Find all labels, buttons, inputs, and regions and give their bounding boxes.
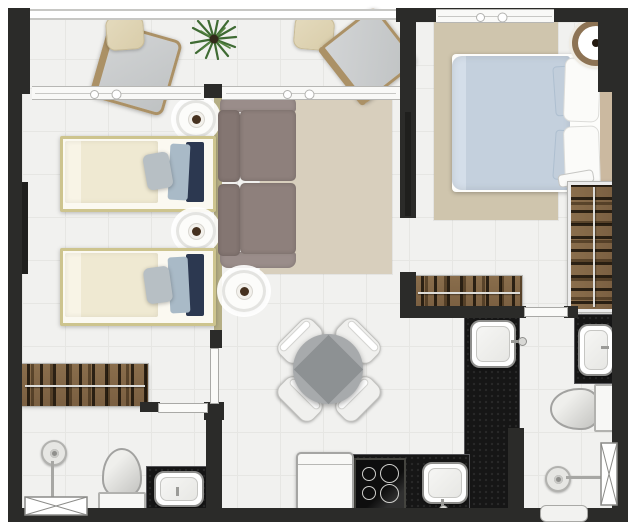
burner [380,464,399,483]
floor-plan [0,0,636,524]
wall-stub-mid [210,330,222,348]
toilet [98,448,144,510]
sliding-window [32,86,204,100]
dining-table [293,334,363,404]
sofa-seat-cushion [240,110,296,181]
crossed-window [24,496,88,516]
shower-head [545,466,571,492]
wardrobe-master [568,182,618,312]
faucet [176,487,179,496]
round-side-table [222,270,266,312]
burner [362,467,376,481]
wall-bottom [8,508,628,522]
faucet [601,346,609,349]
pillow-white [563,57,601,122]
round-nightstand [176,100,216,138]
sofa [218,96,298,268]
wall-pillar-top-left [8,8,30,94]
door-leaf [524,307,568,317]
wardrobe-twin-bedroom [22,364,148,406]
kitchen-sink [422,462,468,504]
window-master-top [436,9,554,23]
refrigerator [296,452,354,512]
twin-bed [60,136,216,212]
shower-arm [566,476,604,479]
wall-kitchen-bath [508,428,524,510]
crossed-window [600,442,618,506]
faucet-knob [518,337,527,346]
balcony-railing [30,9,398,20]
wall-post-balcony [204,84,222,98]
toilet-bowl [550,388,600,430]
twin-bed [60,248,216,326]
burner [380,484,399,503]
fridge-door-seam [298,464,352,465]
toilet-tank [594,384,614,432]
wardrobe-rail [25,385,146,387]
cooktop [354,458,406,510]
balcony-ottoman [105,15,145,52]
threshold [540,505,588,522]
shower-head [41,440,67,466]
sliding-window [222,86,400,100]
wardrobe-hallway [416,276,522,308]
round-nightstand [176,212,216,250]
sofa-seat-cushion [240,183,296,254]
sofa-back-cushion [218,184,240,256]
vanity-sink [154,471,204,507]
wall-mid-lower [206,420,222,510]
wall-hallway [408,306,526,318]
open-door-leaf [405,112,411,216]
wardrobe-rail [418,292,520,294]
shower-arm [51,461,54,501]
door-leaf [158,403,208,413]
cushion [143,265,174,304]
sofa-back-cushion [218,110,240,182]
burner [362,486,376,500]
kitchen-sink [470,320,516,368]
toilet [550,384,612,430]
vanity-sink [578,324,614,376]
toilet-bowl [102,448,142,498]
door-leaf [210,348,219,404]
potted-plant-icon [190,18,238,60]
wardrobe-rail [593,187,595,306]
wall-stub-wardrobe [140,402,160,412]
wall-tv-panel [22,182,28,274]
